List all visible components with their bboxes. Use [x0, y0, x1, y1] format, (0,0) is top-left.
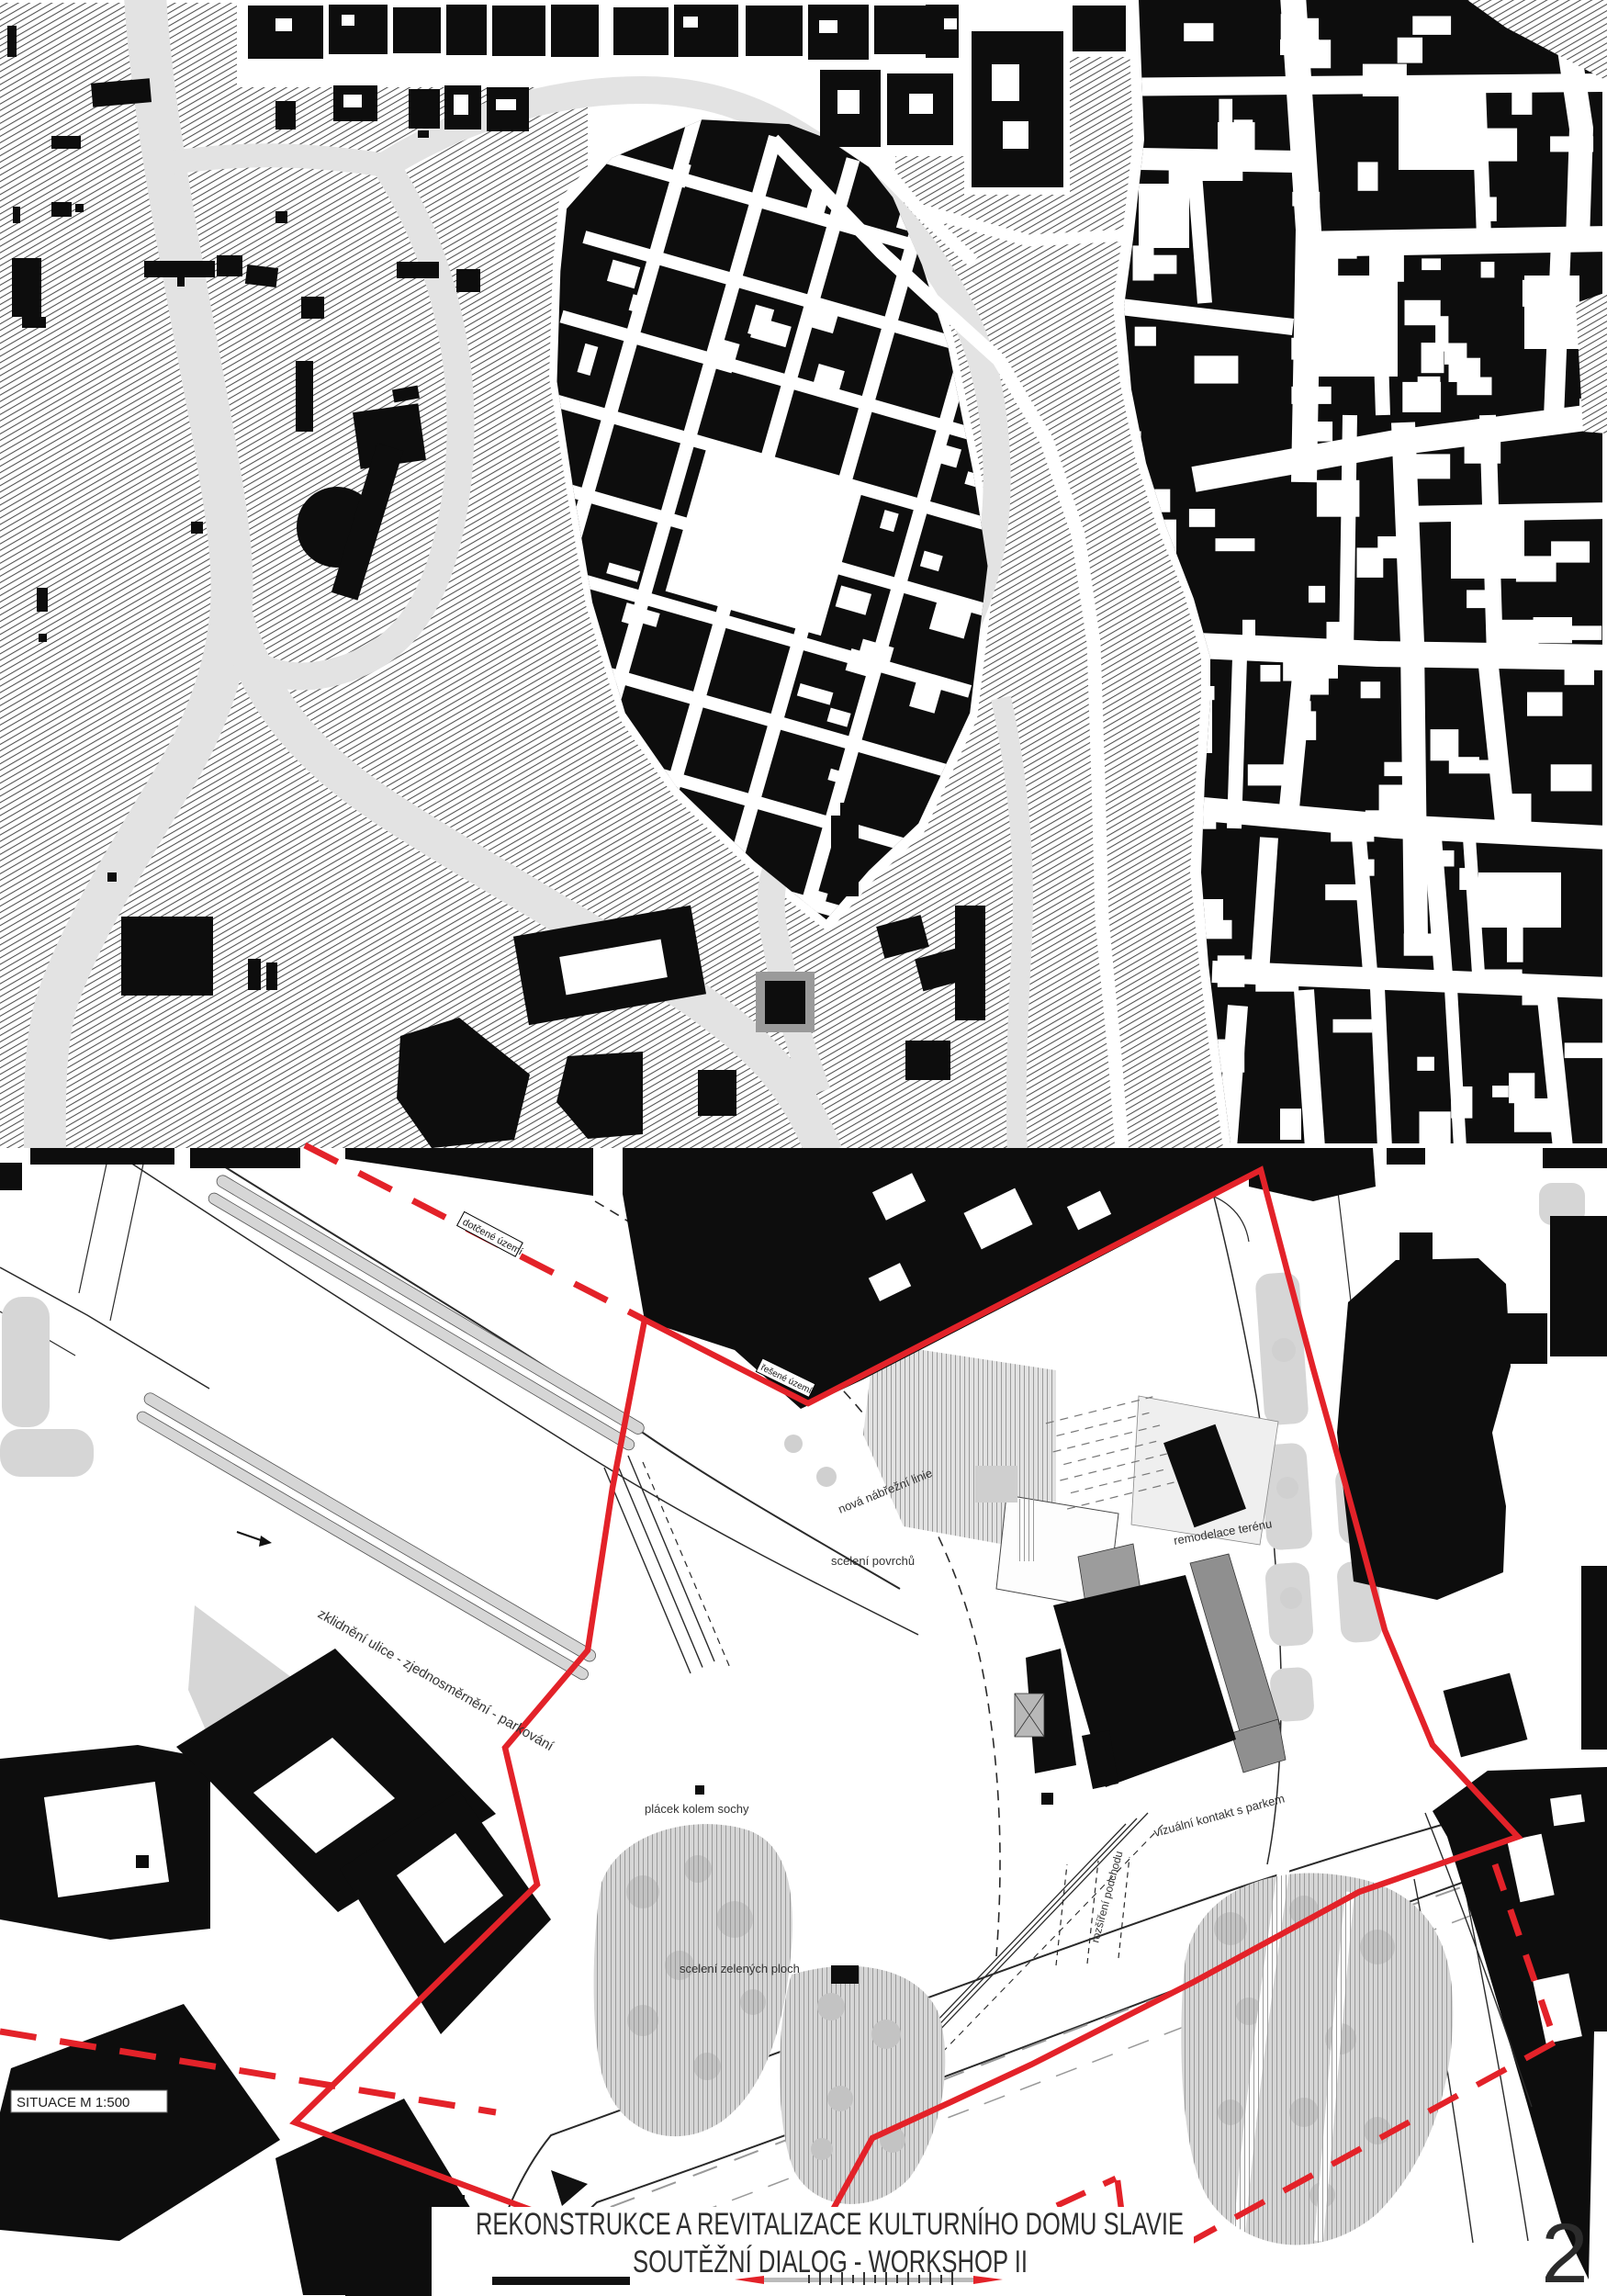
svg-text:scelení povrchů: scelení povrchů	[831, 1554, 915, 1568]
svg-text:2: 2	[1541, 2207, 1588, 2296]
svg-text:REKONSTRUKCE A REVITALIZACE KU: REKONSTRUKCE A REVITALIZACE KULTURNÍHO D…	[476, 2207, 1184, 2242]
svg-text:plácek kolem sochy: plácek kolem sochy	[645, 1802, 749, 1816]
svg-text:scelení zelených ploch: scelení zelených ploch	[680, 1962, 800, 1975]
svg-text:SOUTĚŽNÍ DIALOG - WORKSHOP II: SOUTĚŽNÍ DIALOG - WORKSHOP II	[633, 2245, 1028, 2279]
svg-text:SITUACE M 1:500: SITUACE M 1:500	[17, 2095, 129, 2110]
